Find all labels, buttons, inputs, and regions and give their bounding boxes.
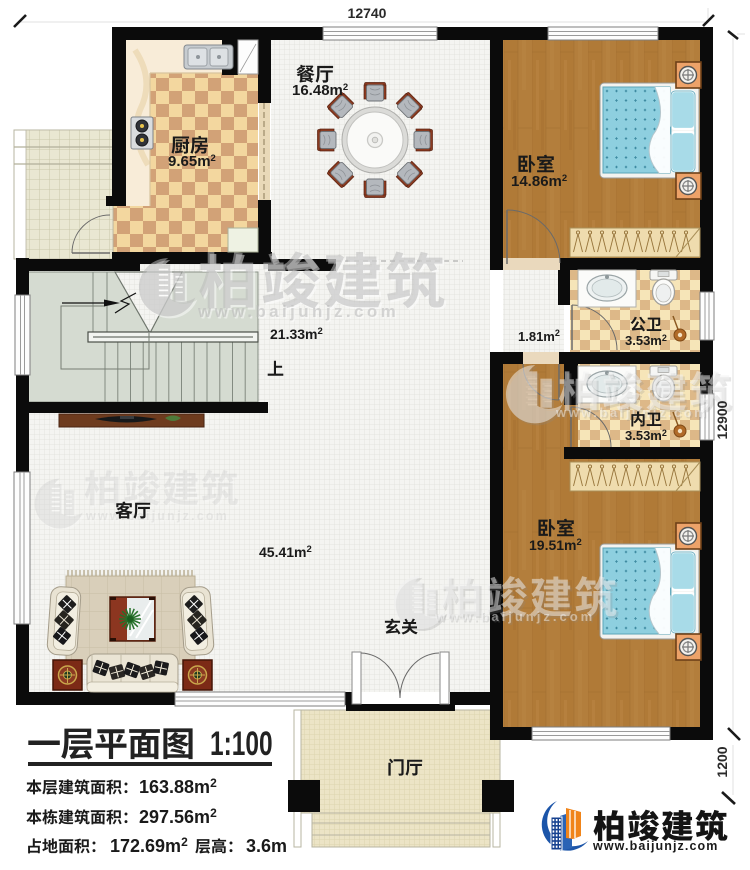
svg-text:3.53m2: 3.53m2 [625, 333, 667, 348]
svg-text:www.baijunjz.com: www.baijunjz.com [85, 509, 229, 523]
svg-text:172.69m2: 172.69m2 [110, 835, 188, 856]
svg-text:297.56m2: 297.56m2 [139, 806, 217, 827]
svg-text:16.48m2: 16.48m2 [292, 82, 348, 99]
svg-text:www.baijunjz.com: www.baijunjz.com [434, 609, 595, 624]
svg-text:1:100: 1:100 [210, 725, 273, 763]
svg-text:www.baijunjz.com: www.baijunjz.com [197, 302, 399, 321]
svg-text:45.41m2: 45.41m2 [259, 544, 312, 560]
svg-text:1200: 1200 [714, 746, 730, 777]
svg-text:21.33m2: 21.33m2 [270, 326, 323, 342]
svg-text:12900: 12900 [714, 400, 730, 439]
svg-text:3.53m2: 3.53m2 [625, 428, 667, 443]
svg-text:19.51m2: 19.51m2 [529, 537, 582, 553]
svg-text:3.6m: 3.6m [246, 836, 287, 856]
svg-text:www.baijunjz.com: www.baijunjz.com [592, 839, 718, 853]
svg-text:12740: 12740 [348, 5, 387, 21]
svg-text:1.81m2: 1.81m2 [518, 328, 560, 344]
svg-text:163.88m2: 163.88m2 [139, 776, 217, 797]
svg-text:9.65m2: 9.65m2 [168, 153, 216, 170]
svg-text:14.86m2: 14.86m2 [511, 173, 567, 190]
